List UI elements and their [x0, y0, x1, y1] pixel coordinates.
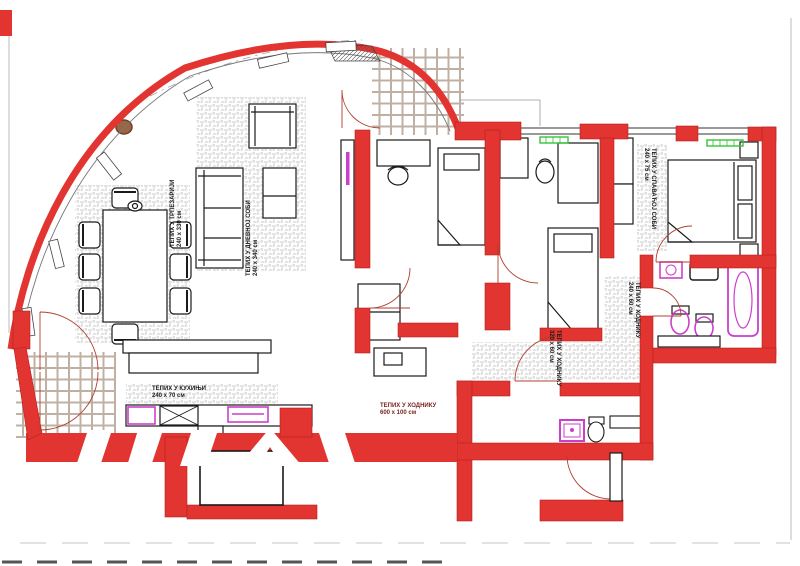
living-rug-label: ТЕПИХ У ДНЕВНОЈ СОБИ 240 х 340 см [246, 200, 260, 276]
hallway-rug-label: ТЕПИХ У ХОДНИКУ 600 х 100 см [380, 403, 436, 417]
hallway-rug-label-size: 600 х 100 см [380, 410, 436, 417]
bedroom-rug-label: ТЕПИХ У СПАВАЋОЈ СОБИ 240 х 75 см [642, 148, 656, 229]
entrance-door-leaf [610, 453, 622, 501]
kid-room1-furniture [358, 140, 485, 376]
corridor-rug-right-label-name: ТЕПИХ У ХОДНИКУ [633, 282, 640, 338]
dining-rug-label-name: ТЕПИХ У ТРПЕЗАРИЈИ [170, 180, 177, 247]
bedroom-rug-label-size: 240 х 75 см [642, 148, 649, 229]
wc-fixtures [560, 416, 643, 442]
floor-plan: ТЕПИХ У ТРПЕЗАРИЈИ 240 х 330 см ТЕПИХ У … [0, 0, 800, 566]
corridor-rug-left-label-size: 320 х 60 см [547, 330, 554, 386]
corridor-rug-left-label-name: ТЕПИХ У ХОДНИКУ [554, 330, 561, 386]
dining-rug-label: ТЕПИХ У ТРПЕЗАРИЈИ 240 х 330 см [170, 180, 184, 247]
living-rug-label-size: 240 х 340 см [253, 200, 260, 276]
kitchen-rug-label-name: ТЕПИХ У КУХИЊИ [152, 386, 206, 393]
bedroom-rug-label-name: ТЕПИХ У СПАВАЋОЈ СОБИ [649, 148, 656, 229]
corridor-rug-left-label: ТЕПИХ У ХОДНИКУ 320 х 60 см [547, 330, 561, 386]
living-rug-label-name: ТЕПИХ У ДНЕВНОЈ СОБИ [246, 200, 253, 276]
balcony-door [200, 451, 283, 505]
floor-plan-drawing [0, 0, 800, 566]
kitchen-rug-label-size: 240 х 70 см [152, 393, 206, 400]
kitchen-rug-label: ТЕПИХ У КУХИЊИ 240 х 70 см [152, 386, 206, 400]
dining-rug-label-size: 240 х 330 см [177, 180, 184, 247]
hallway-rug-label-name: ТЕПИХ У ХОДНИКУ [380, 403, 436, 410]
bedroom-furniture [607, 138, 758, 258]
tv-screen [346, 152, 350, 185]
corridor-rug-right-label: ТЕПИХ У ХОДНИКУ 240 х 60 см [626, 282, 640, 338]
kid-room2-furniture [500, 138, 598, 330]
bathroom-fixtures [658, 260, 758, 347]
window-lines [521, 128, 748, 134]
corridor-rug-right-label-size: 240 х 60 см [626, 282, 633, 338]
